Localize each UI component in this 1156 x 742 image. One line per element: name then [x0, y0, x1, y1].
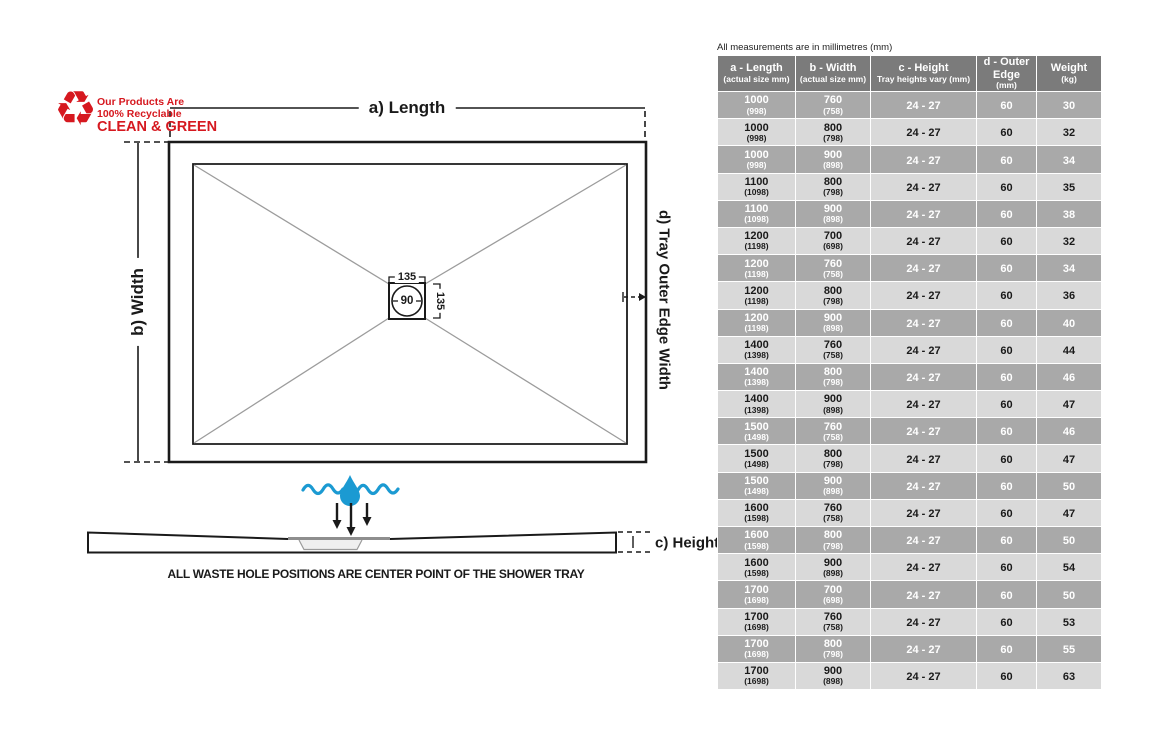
cell-height: 24 - 27 [871, 527, 977, 554]
cell-width: 800(798) [796, 445, 871, 472]
cell-height: 24 - 27 [871, 581, 977, 608]
cell-outer-edge: 60 [977, 635, 1037, 662]
cell-height: 24 - 27 [871, 391, 977, 418]
table-row: 1400(1398) 800(798) 24 - 27 60 46 [718, 363, 1102, 390]
spec-sheet-page: ♻ Our Products Are 100% Recyclable CLEAN… [0, 0, 1156, 742]
table-row: 1700(1698) 700(698) 24 - 27 60 50 [718, 581, 1102, 608]
cell-width: 760(758) [796, 92, 871, 119]
header-weight: Weight (kg) [1037, 56, 1102, 92]
cell-length: 1200(1198) [718, 309, 796, 336]
cell-weight: 34 [1037, 255, 1102, 282]
table-row: 1600(1598) 760(758) 24 - 27 60 47 [718, 499, 1102, 526]
cell-outer-edge: 60 [977, 554, 1037, 581]
cell-height: 24 - 27 [871, 309, 977, 336]
table-row: 1500(1498) 760(758) 24 - 27 60 46 [718, 418, 1102, 445]
cell-height: 24 - 27 [871, 608, 977, 635]
spec-table: a - Length (actual size mm) b - Width (a… [717, 55, 1102, 690]
cell-width: 700(698) [796, 581, 871, 608]
cell-weight: 46 [1037, 363, 1102, 390]
cell-width: 900(898) [796, 472, 871, 499]
table-row: 1000(998) 800(798) 24 - 27 60 32 [718, 119, 1102, 146]
cell-outer-edge: 60 [977, 391, 1037, 418]
cell-outer-edge: 60 [977, 472, 1037, 499]
cell-outer-edge: 60 [977, 499, 1037, 526]
cell-weight: 32 [1037, 119, 1102, 146]
cell-height: 24 - 27 [871, 554, 977, 581]
cell-weight: 47 [1037, 445, 1102, 472]
measurement-note: All measurements are in millimetres (mm) [717, 42, 892, 53]
cell-weight: 50 [1037, 581, 1102, 608]
cell-outer-edge: 60 [977, 608, 1037, 635]
cell-weight: 32 [1037, 227, 1102, 254]
cell-weight: 55 [1037, 635, 1102, 662]
recycle-text-line3: CLEAN & GREEN [97, 119, 217, 135]
label-length: a) Length [359, 98, 456, 118]
cell-outer-edge: 60 [977, 200, 1037, 227]
dim-90-waste-diameter: 90 [401, 295, 414, 307]
cell-length: 1200(1198) [718, 255, 796, 282]
cell-weight: 47 [1037, 391, 1102, 418]
table-row: 1600(1598) 800(798) 24 - 27 60 50 [718, 527, 1102, 554]
cell-outer-edge: 60 [977, 309, 1037, 336]
table-row: 1000(998) 760(758) 24 - 27 60 30 [718, 92, 1102, 119]
cell-weight: 63 [1037, 662, 1102, 689]
cell-length: 1200(1198) [718, 282, 796, 309]
cell-weight: 30 [1037, 92, 1102, 119]
cell-length: 1500(1498) [718, 445, 796, 472]
cell-height: 24 - 27 [871, 173, 977, 200]
cell-width: 800(798) [796, 173, 871, 200]
cell-height: 24 - 27 [871, 472, 977, 499]
cell-weight: 46 [1037, 418, 1102, 445]
table-row: 1200(1198) 700(698) 24 - 27 60 32 [718, 227, 1102, 254]
cell-outer-edge: 60 [977, 662, 1037, 689]
cell-width: 800(798) [796, 527, 871, 554]
cell-width: 800(798) [796, 282, 871, 309]
recycle-icon: ♻ [54, 86, 97, 134]
table-row: 1500(1498) 900(898) 24 - 27 60 50 [718, 472, 1102, 499]
cell-outer-edge: 60 [977, 418, 1037, 445]
cell-length: 1400(1398) [718, 391, 796, 418]
table-row: 1100(1098) 900(898) 24 - 27 60 38 [718, 200, 1102, 227]
cell-width: 760(758) [796, 499, 871, 526]
cell-height: 24 - 27 [871, 119, 977, 146]
label-tray-outer-edge-width: d) Tray Outer Edge Width [656, 210, 673, 390]
table-row: 1700(1698) 760(758) 24 - 27 60 53 [718, 608, 1102, 635]
label-width: b) Width [128, 258, 148, 346]
cell-length: 1200(1198) [718, 227, 796, 254]
table-row: 1100(1098) 800(798) 24 - 27 60 35 [718, 173, 1102, 200]
cell-width: 900(898) [796, 200, 871, 227]
cell-weight: 35 [1037, 173, 1102, 200]
cell-outer-edge: 60 [977, 227, 1037, 254]
cell-outer-edge: 60 [977, 173, 1037, 200]
cell-length: 1500(1498) [718, 418, 796, 445]
cell-outer-edge: 60 [977, 282, 1037, 309]
cell-height: 24 - 27 [871, 499, 977, 526]
cell-length: 1400(1398) [718, 336, 796, 363]
cell-outer-edge: 60 [977, 581, 1037, 608]
cell-outer-edge: 60 [977, 255, 1037, 282]
header-width: b - Width (actual size mm) [796, 56, 871, 92]
table-row: 1200(1198) 800(798) 24 - 27 60 36 [718, 282, 1102, 309]
table-row: 1200(1198) 900(898) 24 - 27 60 40 [718, 309, 1102, 336]
cell-weight: 38 [1037, 200, 1102, 227]
cell-height: 24 - 27 [871, 282, 977, 309]
cell-length: 1700(1698) [718, 608, 796, 635]
cell-weight: 50 [1037, 472, 1102, 499]
cell-length: 1600(1598) [718, 554, 796, 581]
cell-length: 1600(1598) [718, 527, 796, 554]
cell-height: 24 - 27 [871, 363, 977, 390]
height-dimension-bracket [618, 532, 650, 552]
cell-width: 760(758) [796, 418, 871, 445]
cell-height: 24 - 27 [871, 227, 977, 254]
cell-width: 900(898) [796, 146, 871, 173]
cell-weight: 34 [1037, 146, 1102, 173]
cell-outer-edge: 60 [977, 336, 1037, 363]
cell-width: 800(798) [796, 119, 871, 146]
cell-length: 1400(1398) [718, 363, 796, 390]
cell-outer-edge: 60 [977, 363, 1037, 390]
cell-height: 24 - 27 [871, 635, 977, 662]
cell-width: 900(898) [796, 309, 871, 336]
header-outer-edge: d - Outer Edge (mm) [977, 56, 1037, 92]
cell-length: 1000(998) [718, 92, 796, 119]
cell-weight: 44 [1037, 336, 1102, 363]
header-length: a - Length (actual size mm) [718, 56, 796, 92]
cell-outer-edge: 60 [977, 92, 1037, 119]
dim-135-right: 135 [434, 289, 446, 313]
cell-length: 1700(1698) [718, 581, 796, 608]
table-row: 1700(1698) 900(898) 24 - 27 60 63 [718, 662, 1102, 689]
table-row: 1400(1398) 760(758) 24 - 27 60 44 [718, 336, 1102, 363]
header-height: c - Height Tray heights vary (mm) [871, 56, 977, 92]
cell-height: 24 - 27 [871, 418, 977, 445]
table-row: 1500(1498) 800(798) 24 - 27 60 47 [718, 445, 1102, 472]
cell-height: 24 - 27 [871, 200, 977, 227]
cell-length: 1700(1698) [718, 662, 796, 689]
cell-outer-edge: 60 [977, 445, 1037, 472]
cell-weight: 40 [1037, 309, 1102, 336]
tray-profile-view [88, 533, 616, 553]
table-row: 1400(1398) 900(898) 24 - 27 60 47 [718, 391, 1102, 418]
dim-135-top: 135 [395, 271, 419, 283]
cell-weight: 54 [1037, 554, 1102, 581]
cell-length: 1100(1098) [718, 200, 796, 227]
table-row: 1600(1598) 900(898) 24 - 27 60 54 [718, 554, 1102, 581]
cell-weight: 53 [1037, 608, 1102, 635]
cell-weight: 47 [1037, 499, 1102, 526]
cell-height: 24 - 27 [871, 255, 977, 282]
down-arrows-icon [333, 503, 372, 536]
cell-outer-edge: 60 [977, 146, 1037, 173]
cell-height: 24 - 27 [871, 146, 977, 173]
cell-width: 760(758) [796, 608, 871, 635]
cell-width: 760(758) [796, 255, 871, 282]
label-height: c) Height [655, 535, 719, 552]
cell-width: 900(898) [796, 391, 871, 418]
cell-width: 900(898) [796, 554, 871, 581]
cell-height: 24 - 27 [871, 336, 977, 363]
table-row: 1200(1198) 760(758) 24 - 27 60 34 [718, 255, 1102, 282]
cell-width: 760(758) [796, 336, 871, 363]
cell-outer-edge: 60 [977, 119, 1037, 146]
cell-height: 24 - 27 [871, 662, 977, 689]
cell-length: 1600(1598) [718, 499, 796, 526]
cell-height: 24 - 27 [871, 445, 977, 472]
table-row: 1700(1698) 800(798) 24 - 27 60 55 [718, 635, 1102, 662]
table-header-row: a - Length (actual size mm) b - Width (a… [718, 56, 1102, 92]
cell-length: 1700(1698) [718, 635, 796, 662]
cell-weight: 36 [1037, 282, 1102, 309]
cell-width: 800(798) [796, 635, 871, 662]
spec-table-body: 1000(998) 760(758) 24 - 27 60 30 1000(99… [718, 92, 1102, 690]
cell-length: 1100(1098) [718, 173, 796, 200]
cell-outer-edge: 60 [977, 527, 1037, 554]
water-drop-icon [303, 475, 398, 506]
cell-length: 1000(998) [718, 119, 796, 146]
waste-hole-footnote: ALL WASTE HOLE POSITIONS ARE CENTER POIN… [168, 567, 585, 581]
cell-width: 800(798) [796, 363, 871, 390]
table-row: 1000(998) 900(898) 24 - 27 60 34 [718, 146, 1102, 173]
recycle-text-line1: Our Products Are [97, 96, 184, 108]
cell-length: 1500(1498) [718, 472, 796, 499]
cell-length: 1000(998) [718, 146, 796, 173]
cell-height: 24 - 27 [871, 92, 977, 119]
cell-weight: 50 [1037, 527, 1102, 554]
cell-width: 700(698) [796, 227, 871, 254]
cell-width: 900(898) [796, 662, 871, 689]
